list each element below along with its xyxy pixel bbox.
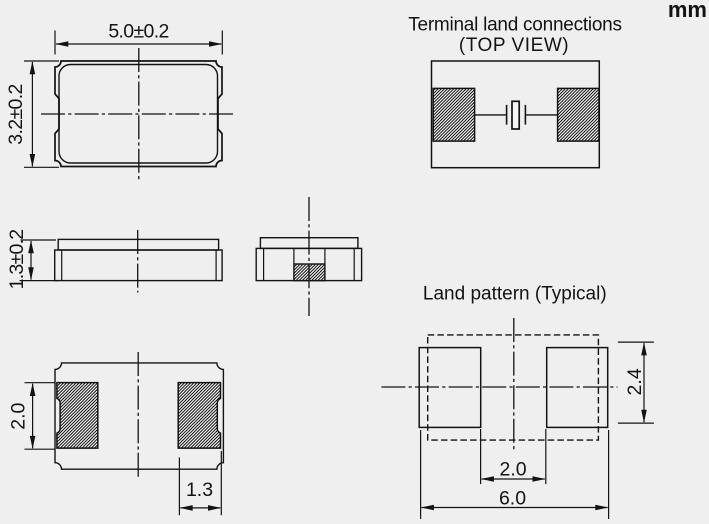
svg-text:6.0: 6.0 xyxy=(499,487,526,509)
svg-text:2.0: 2.0 xyxy=(8,402,30,429)
svg-text:1.3: 1.3 xyxy=(186,479,213,501)
svg-text:mm: mm xyxy=(668,0,707,22)
svg-text:Terminal land connections: Terminal land connections xyxy=(408,14,621,35)
svg-text:(TOP VIEW): (TOP VIEW) xyxy=(459,35,569,56)
svg-text:5.0±0.2: 5.0±0.2 xyxy=(108,20,168,42)
svg-text:2.0: 2.0 xyxy=(500,458,527,480)
svg-text:Land pattern (Typical): Land pattern (Typical) xyxy=(423,283,607,304)
svg-text:1.3±0.2: 1.3±0.2 xyxy=(6,230,28,290)
svg-text:2.4: 2.4 xyxy=(624,368,646,395)
svg-text:3.2±0.2: 3.2±0.2 xyxy=(5,84,27,144)
